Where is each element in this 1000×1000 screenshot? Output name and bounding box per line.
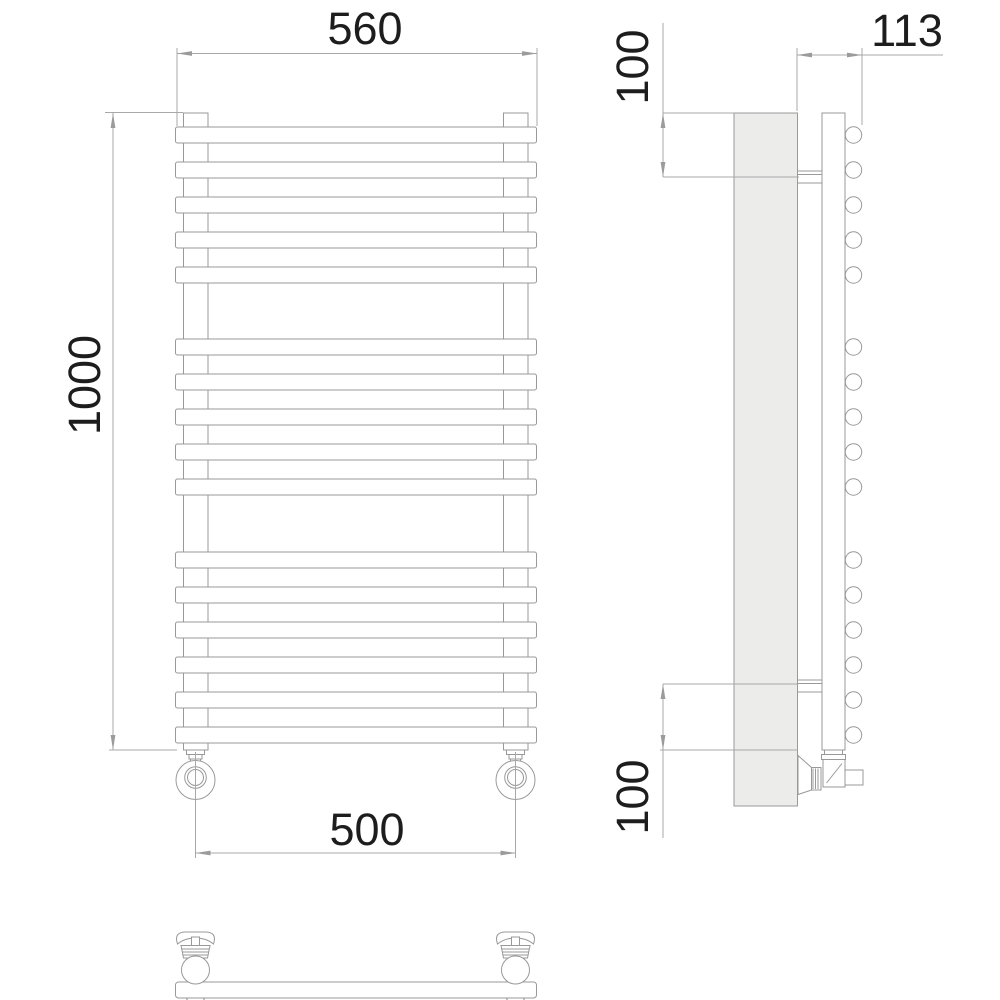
right-valve-bottom (496, 932, 534, 984)
bar-end-circle (845, 232, 861, 248)
bottom-view-rail (176, 982, 537, 998)
towel-bar (176, 692, 537, 708)
right-valve-front (496, 750, 535, 858)
dim-label-width: 560 (327, 3, 402, 54)
dim-label-top-offset: 100 (607, 29, 658, 104)
left-valve-front (176, 750, 215, 858)
valve-outlet-pipe (845, 770, 863, 785)
dimension-width-560: 560 (177, 3, 537, 126)
towel-bar (176, 232, 537, 248)
bar-end-circle (845, 339, 861, 355)
towel-bar (176, 479, 537, 495)
towel-bar (176, 339, 537, 355)
dim-label-valve-spacing: 500 (329, 804, 404, 855)
top-bracket (798, 171, 823, 183)
bar-end-circle (845, 692, 861, 708)
bottom-view (176, 932, 537, 1000)
dim-label-depth: 113 (871, 5, 943, 56)
towel-bar (176, 162, 537, 178)
towel-bars (176, 127, 537, 743)
towel-bar (176, 552, 537, 568)
bar-end-circle (845, 444, 861, 460)
valve-cap (798, 756, 812, 795)
dim-label-height: 1000 (59, 335, 110, 435)
bar-end-circle (845, 374, 861, 390)
towel-bar (176, 197, 537, 213)
towel-bar (176, 657, 537, 673)
bar-end-circle (845, 552, 861, 568)
front-view (176, 113, 537, 858)
valve-collar (822, 755, 846, 760)
bar-end-circle (845, 197, 861, 213)
towel-bar (176, 622, 537, 638)
bar-end-circle (845, 657, 861, 673)
towel-bar (176, 127, 537, 143)
towel-bar (176, 587, 537, 603)
bar-end-circle (845, 727, 861, 743)
wall-panel (734, 113, 798, 806)
towel-bar (176, 409, 537, 425)
bar-end-circle (845, 479, 861, 495)
towel-bar (176, 267, 537, 283)
bar-end-circles (845, 127, 861, 743)
towel-bar (176, 727, 537, 743)
bar-end-circle (845, 162, 861, 178)
bar-end-circle (845, 127, 861, 143)
dimension-depth-113: 113 (797, 5, 943, 125)
dimension-height-1000: 1000 (59, 113, 183, 751)
towel-bar (176, 444, 537, 460)
side-view (734, 113, 863, 806)
side-post (822, 113, 845, 750)
technical-drawing: 560 1000 500 113 (0, 0, 1000, 1000)
bar-end-circle (845, 409, 861, 425)
bar-end-circle (845, 267, 861, 283)
bar-end-circle (845, 622, 861, 638)
bar-end-circle (845, 587, 861, 603)
left-valve-bottom (176, 932, 214, 984)
towel-bar (176, 374, 537, 390)
drawing-canvas: 560 1000 500 113 (0, 0, 1000, 1000)
side-valve (798, 750, 863, 795)
bottom-bracket (798, 680, 823, 692)
valve-neck (825, 750, 843, 755)
dimension-valve-spacing-500: 500 (196, 804, 516, 855)
dim-label-bottom-offset: 100 (607, 759, 658, 834)
